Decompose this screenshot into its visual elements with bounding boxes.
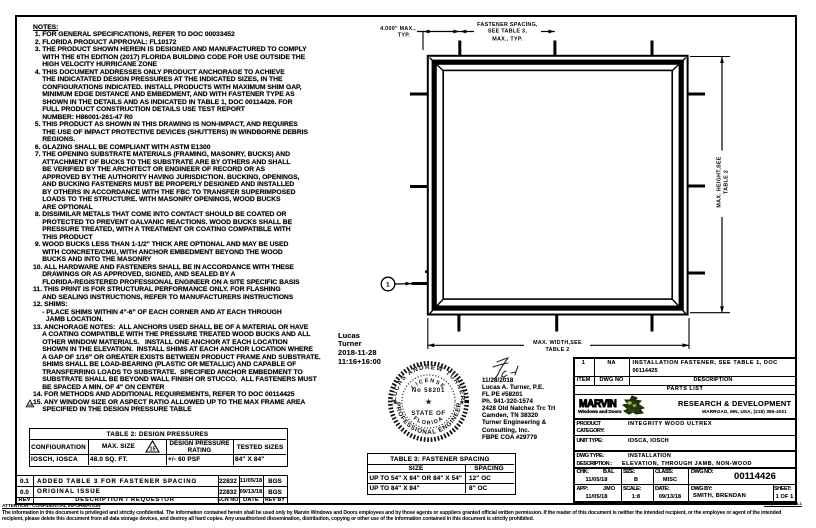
svg-text:★: ★ bbox=[425, 398, 432, 406]
svg-text:TABLE 2: TABLE 2 bbox=[545, 347, 569, 353]
svg-text:1: 1 bbox=[386, 281, 390, 288]
svg-text:STATE OF: STATE OF bbox=[411, 410, 445, 417]
svg-text:SEE TABLE 3,: SEE TABLE 3, bbox=[488, 29, 527, 35]
svg-text:FLORIDA: FLORIDA bbox=[412, 416, 445, 427]
svg-text:FASTENER SPACING,: FASTENER SPACING, bbox=[477, 22, 538, 28]
svg-text:MAX., TYP.: MAX., TYP. bbox=[492, 37, 523, 43]
svg-text:15: 15 bbox=[28, 403, 32, 407]
svg-text:4.000" MAX.,: 4.000" MAX., bbox=[380, 26, 416, 32]
svg-text:MAX. WIDTH,SEE: MAX. WIDTH,SEE bbox=[533, 340, 582, 346]
svg-text:MAX. HEIGHT,SEE: MAX. HEIGHT,SEE bbox=[717, 156, 723, 207]
svg-text:PROFESSIONAL ENGINEER: PROFESSIONAL ENGINEER bbox=[394, 402, 463, 436]
svg-text:No 58201: No 58201 bbox=[412, 387, 446, 394]
svg-text:TABLE 2: TABLE 2 bbox=[724, 170, 730, 194]
svg-text:TYP.: TYP. bbox=[398, 32, 411, 38]
